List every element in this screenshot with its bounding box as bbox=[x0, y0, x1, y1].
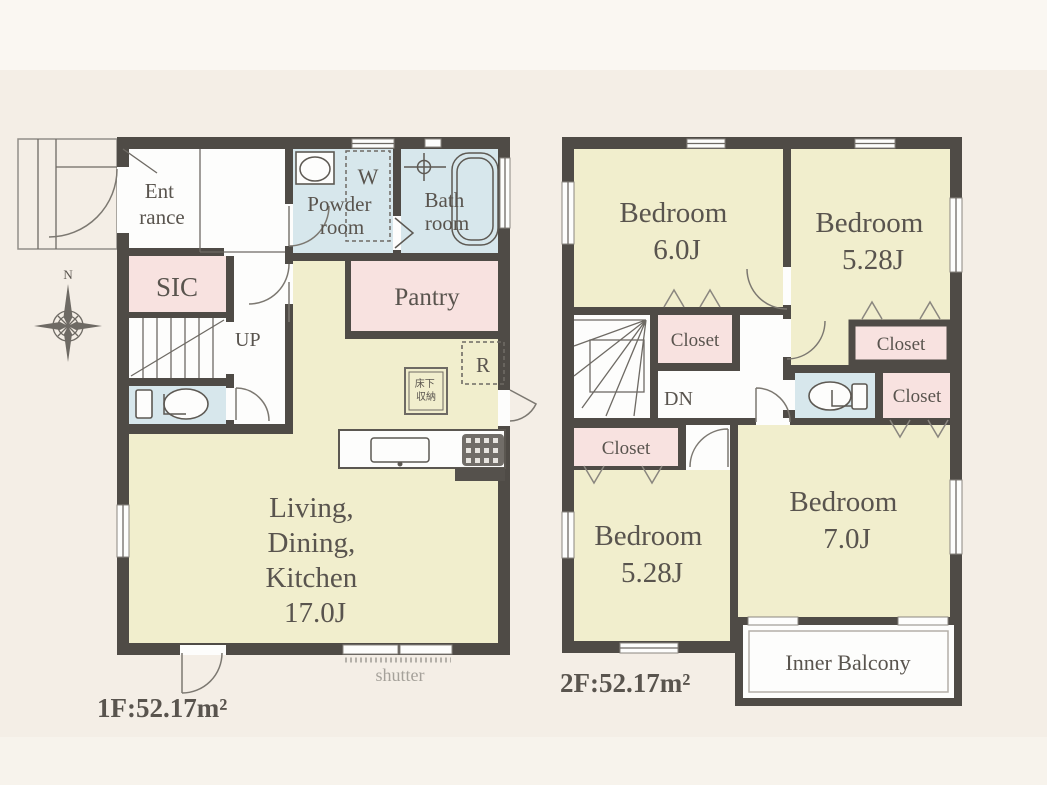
floor2-area-label: 2F:52.17m² bbox=[560, 668, 690, 698]
floor2-plan: Bedroom 6.0J Bedroom 5.28J Closet Closet… bbox=[560, 137, 962, 706]
room-bedroom-se bbox=[738, 425, 950, 617]
room-bedroom-sw bbox=[574, 470, 730, 641]
room-hall-2f-b bbox=[740, 315, 783, 418]
washer-label: W bbox=[358, 164, 379, 189]
inner-balcony-label: Inner Balcony bbox=[785, 650, 910, 675]
closet-ne-label: Closet bbox=[877, 334, 926, 355]
floor1-plan: Ent rance SIC UP Powder room Bath room P… bbox=[18, 137, 536, 723]
fridge-label: R bbox=[476, 353, 490, 377]
closet-e-label: Closet bbox=[893, 386, 942, 407]
porch-steps bbox=[18, 139, 117, 249]
toilet-icon-1f bbox=[136, 389, 208, 419]
dn-label: DN bbox=[664, 388, 693, 410]
compass-north-label: N bbox=[63, 267, 73, 282]
bath-room-label: Bath room bbox=[425, 188, 470, 235]
sink-icon bbox=[296, 152, 334, 184]
toilet-icon-2f bbox=[809, 382, 867, 410]
floorplan-image: N bbox=[0, 0, 1047, 785]
pantry-label: Pantry bbox=[394, 284, 460, 311]
shutter-label: shutter bbox=[376, 665, 425, 685]
up-label: UP bbox=[235, 329, 261, 351]
closet-mid-label: Closet bbox=[671, 330, 720, 351]
floor1-area-label: 1F:52.17m² bbox=[97, 693, 227, 723]
compass-rose-icon: N bbox=[34, 267, 102, 362]
sic-label: SIC bbox=[156, 272, 198, 302]
closet-w-label: Closet bbox=[602, 438, 651, 459]
